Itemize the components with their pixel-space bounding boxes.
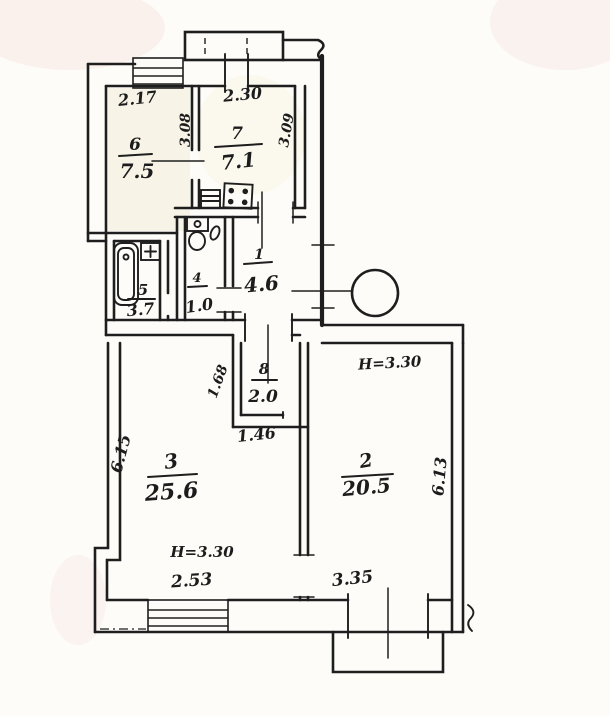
tub-inner — [118, 248, 134, 300]
toilet-button — [195, 221, 201, 227]
wall-break-squiggle — [283, 40, 323, 58]
dim-closet-width: 1.46 — [236, 423, 277, 446]
burner — [242, 199, 248, 205]
dim-room2-window: 3.35 — [331, 567, 374, 591]
room-4-number: 4 — [192, 271, 201, 286]
toilet-icon — [187, 217, 221, 250]
dim-rooms67-depth: 3.08 — [178, 113, 194, 147]
wc-basin — [209, 225, 222, 241]
window-room3 — [148, 600, 228, 632]
ceiling-height-room2: H=3.30 — [357, 352, 423, 373]
circle-symbol — [352, 270, 398, 316]
fraction-bar — [188, 286, 207, 287]
room-5-area: 3.7 — [126, 299, 155, 320]
balcony-bottom — [333, 588, 443, 672]
room-1-number: 1 — [254, 247, 264, 263]
room-6-number: 6 — [129, 135, 141, 155]
room-1-label: 1 4.6 — [243, 247, 280, 297]
burner — [228, 199, 234, 205]
fraction-bar — [244, 262, 272, 264]
scanned-floor-plan: 6 7.5 7 7.1 5 3.7 4 1.0 1 4.6 8 2.0 — [0, 0, 610, 716]
room-5-number: 5 — [138, 281, 148, 299]
window-hatch — [148, 610, 228, 626]
room-7-area: 7.1 — [220, 147, 257, 175]
room-3-label: 3 25.6 — [143, 448, 199, 507]
dim-room3-depth: 6.15 — [106, 432, 134, 475]
dim-room3-window: 2.53 — [169, 570, 213, 593]
room-8-area: 2.0 — [247, 387, 278, 407]
door-jambs — [217, 288, 241, 312]
room-6-area: 7.5 — [120, 159, 155, 183]
window-frame — [148, 600, 228, 632]
toilet-bowl — [189, 232, 205, 250]
room-1-area: 4.6 — [243, 271, 280, 298]
room-2-area: 20.5 — [340, 473, 392, 501]
room-4-label: 4 1.0 — [184, 271, 214, 317]
dim-closet-depth: 1.68 — [205, 363, 232, 401]
bathtub-icon — [114, 243, 138, 305]
basin-cross — [145, 246, 156, 257]
room-5-label: 5 3.7 — [126, 281, 155, 320]
door-jambs — [294, 555, 314, 597]
sink-outline — [201, 190, 220, 208]
ceiling-height-room3: H=3.30 — [169, 543, 234, 561]
window-room6 — [133, 58, 183, 88]
toilet-tank — [187, 217, 208, 231]
fraction-bar — [148, 474, 197, 477]
floor-plan-canvas: 6 7.5 7 7.1 5 3.7 4 1.0 1 4.6 8 2.0 — [0, 0, 610, 716]
room-3-area: 25.6 — [143, 477, 199, 507]
stain — [0, 0, 165, 70]
shaft-circle-marker — [292, 270, 398, 316]
room-8-number: 8 — [259, 360, 270, 378]
window-hatch — [133, 68, 183, 84]
room-7-number: 7 — [231, 124, 243, 144]
room-8-label: 8 2.0 — [247, 360, 278, 407]
room-2-label: 2 20.5 — [340, 449, 393, 501]
dim-room2-depth: 6.13 — [428, 456, 450, 496]
wall-break-squiggle — [468, 605, 473, 631]
door-jambs — [258, 202, 293, 223]
dim-room7-width: 2.30 — [221, 83, 262, 105]
balcony-dashes — [205, 38, 247, 56]
room-4-area: 1.0 — [184, 294, 214, 317]
room-2-number: 2 — [357, 449, 375, 473]
room-3-number: 3 — [162, 448, 179, 474]
sink-lines — [201, 196, 220, 201]
kitchen-sink-icon — [201, 190, 220, 208]
stain — [490, 0, 610, 70]
tub-drain — [124, 255, 129, 260]
washbasin-icon — [141, 243, 160, 260]
balcony-outline — [185, 32, 283, 60]
